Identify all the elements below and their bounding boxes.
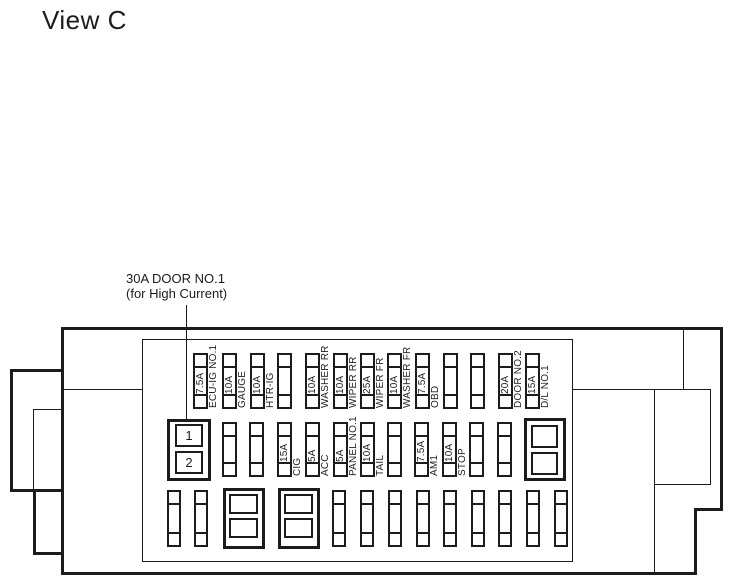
fuse-15a-dl-no1: 15A D/L NO.1 <box>525 353 540 409</box>
fuse-10a-washer-fr: 10A WASHER FR <box>387 353 402 409</box>
fuse-slot-empty <box>167 490 181 547</box>
fuse-5a-acc: 5A ACC <box>305 422 320 477</box>
fuse-slot-empty <box>469 422 484 477</box>
callout-line2: (for High Current) <box>126 286 227 301</box>
fuse-slot-empty <box>194 490 208 547</box>
left-tab-lower <box>33 409 64 555</box>
fuse-5a-panel-no1: 5A PANEL NO.1 <box>333 422 348 477</box>
housing-top-edge <box>61 327 723 330</box>
fuse-slot-empty <box>443 490 457 547</box>
fuse-slot-empty <box>388 490 402 547</box>
terminal-slot <box>531 452 558 475</box>
fuse-10a-washer-rr: 10A WASHER RR <box>305 353 320 409</box>
fuse-slot-empty <box>443 353 458 409</box>
terminal-2: 2 <box>175 451 203 474</box>
terminal-slot <box>229 518 258 538</box>
high-current-connector <box>223 488 265 549</box>
fuse-slot-empty <box>498 490 512 547</box>
fuse-slot-empty <box>554 490 568 547</box>
right-connector-step-line <box>654 484 711 485</box>
housing-right-step-horizontal <box>694 508 723 511</box>
fuse-amp-label: 20A <box>501 376 511 394</box>
fuse-10a-stop: 10A STOP <box>442 422 457 477</box>
fuse-amp-label: 10A <box>308 376 318 394</box>
fuse-slot-empty <box>332 490 346 547</box>
fuse-name-label: D/L NO.1 <box>541 365 551 408</box>
terminal-slot <box>531 425 558 448</box>
fuse-10a-gauge: 10A GAUGE <box>222 353 237 409</box>
housing-bottom-edge <box>61 572 697 575</box>
fuse-amp-label: 15A <box>528 376 538 394</box>
fuse-name-label: DOOR NO.2 <box>514 350 524 408</box>
fuse-amp-label: 7.5A <box>196 373 206 394</box>
fuse-slot-empty <box>416 490 430 547</box>
fuse-10a-htr-ig: 10A HTR-IG <box>250 353 265 409</box>
fuse-slot-empty <box>526 490 540 547</box>
fuse-amp-label: 10A <box>225 376 235 394</box>
terminal-slot <box>229 494 258 514</box>
callout-line1: 30A DOOR NO.1 <box>126 271 227 286</box>
door-no1-callout: 30A DOOR NO.1 (for High Current) <box>126 271 227 301</box>
view-title: View C <box>42 5 127 36</box>
fuse-name-label: WIPER FR <box>376 358 386 409</box>
fuse-slot-empty <box>497 422 512 477</box>
left-tab-lower-thick-left <box>33 490 36 555</box>
right-connector-edge-inner <box>654 389 655 572</box>
fuse-name-label: STOP <box>458 448 468 476</box>
fuse-amp-label: 10A <box>253 376 263 394</box>
fuse-amp-label: 5A <box>308 449 318 462</box>
fuse-amp-label: 10A <box>336 376 346 394</box>
fuse-amp-label: 7.5A <box>418 373 428 394</box>
fuse-name-label: PANEL NO.1 <box>349 416 359 476</box>
fuse-slot-empty <box>470 353 485 409</box>
fuse-10a-tail: 10A TAIL <box>360 422 375 477</box>
fuse-7-5a-obd: 7.5A OBD <box>415 353 430 409</box>
fuse-amp-label: 10A <box>390 376 400 394</box>
housing-right-step-vertical <box>694 508 697 575</box>
fuse-7-5a-am1: 7.5A AM1 <box>414 422 429 477</box>
high-current-connector <box>524 418 566 481</box>
fuse-slot-empty <box>387 422 402 477</box>
left-tab-lower-thick-bottom <box>33 552 64 555</box>
fuse-25a-wiper-fr: 25A WIPER FR <box>360 353 375 409</box>
fuse-name-label: HTR-IG <box>266 372 276 408</box>
fuse-slot-empty <box>360 490 374 547</box>
fuse-name-label: OBD <box>431 386 441 408</box>
fuse-name-label: CIG <box>293 458 303 476</box>
fuse-amp-label: 15A <box>280 444 290 462</box>
fuse-20a-door-no2: 20A DOOR NO.2 <box>498 353 513 409</box>
right-inner-line-horizontal <box>573 389 710 390</box>
terminal-1-label: 1 <box>185 428 192 443</box>
fuse-name-label: TAIL <box>376 455 386 476</box>
right-inner-line-vertical-top <box>683 330 684 389</box>
fuse-slot-empty <box>249 422 264 477</box>
fuse-name-label: WIPER RR <box>349 356 359 408</box>
fuse-amp-label: 7.5A <box>417 441 427 462</box>
terminal-slot <box>284 494 313 514</box>
fuse-amp-label: 5A <box>336 449 346 462</box>
housing-right-edge <box>720 327 723 511</box>
door-no1-high-current-connector: 1 2 <box>167 419 211 481</box>
fuse-10a-wiper-rr: 10A WIPER RR <box>333 353 348 409</box>
left-inner-line <box>64 389 142 390</box>
fuse-amp-label: 25A <box>363 376 373 394</box>
terminal-2-label: 2 <box>185 455 192 470</box>
high-current-connector <box>278 488 320 549</box>
fuse-name-label: WASHER RR <box>321 345 331 408</box>
fuse-slot-empty <box>277 353 292 409</box>
fuse-7-5a-ecu-ig-no1: 7.5A ECU-IG NO.1 <box>193 353 208 409</box>
fuse-name-label: ECU-IG NO.1 <box>209 345 219 408</box>
terminal-slot <box>284 518 313 538</box>
fuse-name-label: ACC <box>321 454 331 476</box>
terminal-1: 1 <box>175 424 203 447</box>
right-connector-edge-outer <box>710 389 711 485</box>
fuse-slot-empty <box>222 422 237 477</box>
fuse-15a-cig: 15A CIG <box>277 422 292 477</box>
fuse-amp-label: 10A <box>363 444 373 462</box>
fuse-name-label: AM1 <box>430 455 440 476</box>
fuse-slot-empty <box>471 490 485 547</box>
fuse-box-diagram: View C 30A DOOR NO.1 (for High Current) … <box>0 0 733 584</box>
fuse-amp-label: 10A <box>445 444 455 462</box>
fuse-name-label: WASHER FR <box>403 347 413 408</box>
fuse-name-label: GAUGE <box>238 371 248 408</box>
